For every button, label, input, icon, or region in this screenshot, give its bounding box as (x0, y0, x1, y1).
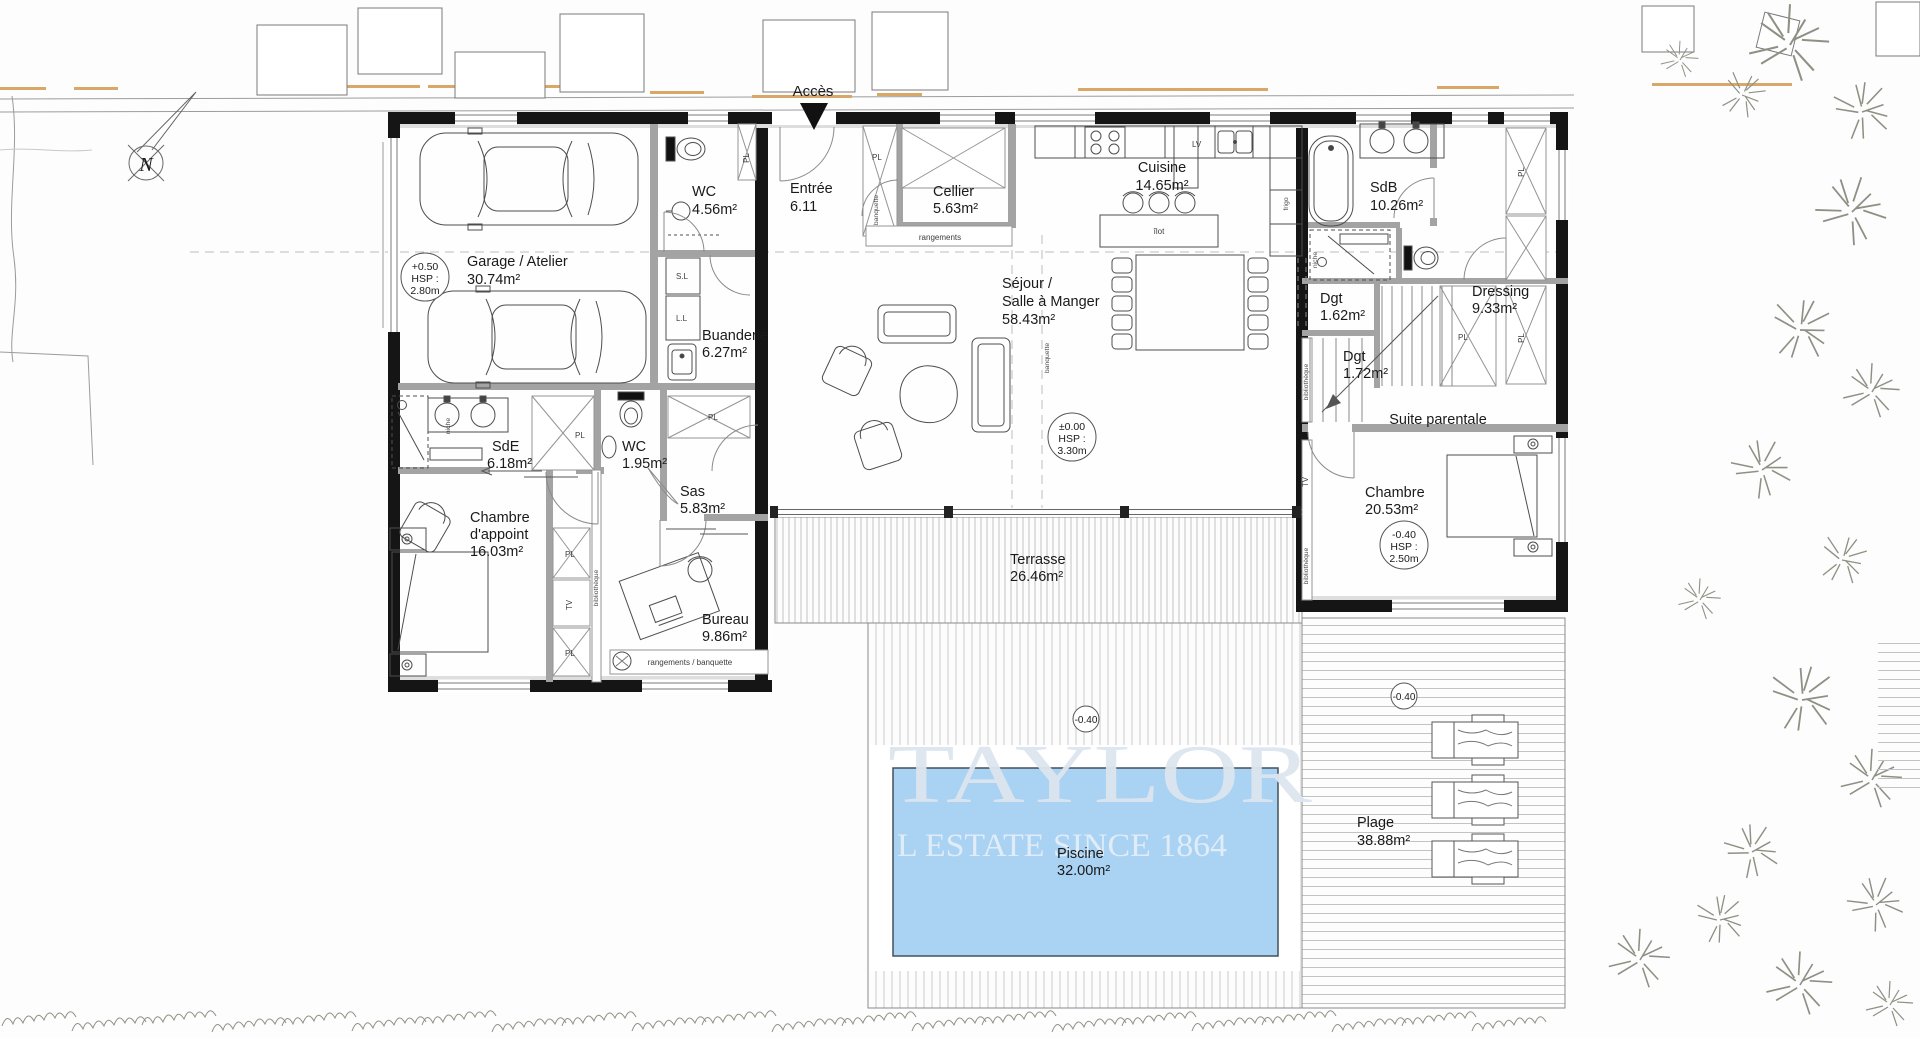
svg-text:rangements: rangements (919, 233, 961, 242)
room-label-cellier: Cellier (933, 184, 974, 200)
svg-text:3.30m: 3.30m (1057, 445, 1086, 457)
room-label-buanderie: Buanderie (702, 328, 768, 344)
trees (1609, 4, 1913, 1026)
room-label-dressing: Dressing (1472, 284, 1529, 300)
svg-text:LV: LV (1192, 140, 1202, 149)
room-label-garage: Garage / Atelier (467, 254, 568, 270)
svg-text:5.83m²: 5.83m² (680, 501, 725, 517)
svg-text:14.65m²: 14.65m² (1135, 178, 1188, 194)
room-label-wc2: WC (622, 439, 646, 455)
svg-text:niche: niche (1312, 252, 1319, 268)
svg-text:d'appoint: d'appoint (470, 527, 528, 543)
bottom-hedge (2, 1011, 1546, 1032)
compass-n-label: N (138, 154, 154, 176)
sun-loungers (1432, 715, 1518, 884)
floor-plan-page: N (0, 0, 1920, 1038)
svg-text:20.53m²: 20.53m² (1365, 502, 1418, 518)
svg-text:S.L: S.L (676, 272, 689, 281)
svg-text:58.43m²: 58.43m² (1002, 312, 1055, 328)
svg-text:PL: PL (575, 431, 585, 440)
svg-text:bibliothèque: bibliothèque (593, 569, 600, 606)
svg-text:PL: PL (708, 413, 718, 422)
svg-text:±0.00: ±0.00 (1059, 421, 1085, 433)
watermark-line1: TAYLOR (888, 728, 1312, 821)
svg-text:1.95m²: 1.95m² (622, 456, 667, 472)
svg-text:6.18m²: 6.18m² (487, 456, 532, 472)
svg-text:bibliothèque: bibliothèque (1303, 547, 1310, 584)
svg-text:bibliothèque: bibliothèque (1303, 363, 1310, 400)
room-label-dgt1: Dgt (1320, 291, 1343, 307)
acces-label: Accès (793, 83, 834, 100)
svg-text:6.11: 6.11 (790, 199, 817, 215)
svg-text:TV: TV (565, 599, 574, 610)
room-label-chambre-suite: Chambre (1365, 485, 1425, 501)
right-edge-hatch (1878, 638, 1920, 790)
room-label-sde: SdE (492, 439, 520, 455)
svg-text:PL: PL (565, 649, 575, 658)
room-label-sas: Sas (680, 484, 705, 500)
svg-text:9.86m²: 9.86m² (702, 629, 747, 645)
plage-level-label: -0.40 (1393, 692, 1416, 703)
svg-text:1.72m²: 1.72m² (1343, 366, 1388, 382)
room-label-piscine: Piscine (1057, 846, 1104, 862)
svg-text:-0.40: -0.40 (1392, 529, 1416, 541)
svg-text:PL: PL (1517, 333, 1526, 343)
svg-text:32.00m²: 32.00m² (1057, 863, 1110, 879)
svg-text:HSP :: HSP : (1058, 433, 1085, 445)
svg-text:banquette: banquette (873, 195, 880, 225)
svg-text:HSP :: HSP : (411, 273, 438, 285)
room-label-chambre-appoint: Chambre (470, 510, 530, 526)
svg-text:L.L: L.L (676, 314, 688, 323)
room-label-bureau: Bureau (702, 612, 749, 628)
floor-plan-svg: N (0, 0, 1920, 1038)
svg-text:38.88m²: 38.88m² (1357, 833, 1410, 849)
svg-text:+0.50: +0.50 (412, 261, 439, 273)
room-label-cuisine: Cuisine (1138, 160, 1186, 176)
room-label-entree: Entrée (790, 181, 833, 197)
svg-text:niche: niche (445, 418, 452, 434)
room-label-terrasse: Terrasse (1010, 552, 1066, 568)
svg-text:10.26m²: 10.26m² (1370, 198, 1423, 214)
svg-text:PL: PL (1517, 167, 1526, 177)
svg-text:1.62m²: 1.62m² (1320, 308, 1365, 324)
svg-text:frigo: frigo (1283, 197, 1290, 210)
svg-text:rangements / banquette: rangements / banquette (648, 658, 733, 667)
room-label-dgt2: Dgt (1343, 349, 1366, 365)
svg-text:26.46m²: 26.46m² (1010, 569, 1063, 585)
svg-text:banquette: banquette (1044, 343, 1051, 373)
svg-text:PL: PL (872, 153, 882, 162)
room-label-suite-parentale: Suite parentale (1389, 412, 1487, 428)
room-label-plage: Plage (1357, 815, 1394, 831)
room-label-wc-garage: WC (692, 184, 716, 200)
svg-text:2.50m: 2.50m (1389, 553, 1418, 565)
svg-text:TV: TV (1301, 476, 1310, 487)
room-area-garage: 30.74m² (467, 272, 520, 288)
plage-deck (1302, 618, 1565, 1008)
svg-text:PL: PL (1458, 333, 1468, 342)
svg-text:4.56m²: 4.56m² (692, 202, 737, 218)
svg-text:2.80m: 2.80m (410, 285, 439, 297)
room-label-sdb: SdB (1370, 180, 1397, 196)
svg-text:16.03m²: 16.03m² (470, 544, 523, 560)
room-label-sejour: Séjour / (1002, 276, 1053, 292)
svg-text:Salle à Manger: Salle à Manger (1002, 294, 1100, 310)
svg-text:PL: PL (565, 550, 575, 559)
svg-text:HSP :: HSP : (1390, 541, 1417, 553)
svg-text:9.33m²: 9.33m² (1472, 301, 1517, 317)
north-compass (128, 92, 196, 181)
svg-text:6.27m²: 6.27m² (702, 345, 747, 361)
deck-level-label: -0.40 (1075, 715, 1098, 726)
svg-text:îlot: îlot (1153, 227, 1165, 236)
svg-text:5.63m²: 5.63m² (933, 201, 978, 217)
svg-text:PL: PL (742, 153, 751, 163)
